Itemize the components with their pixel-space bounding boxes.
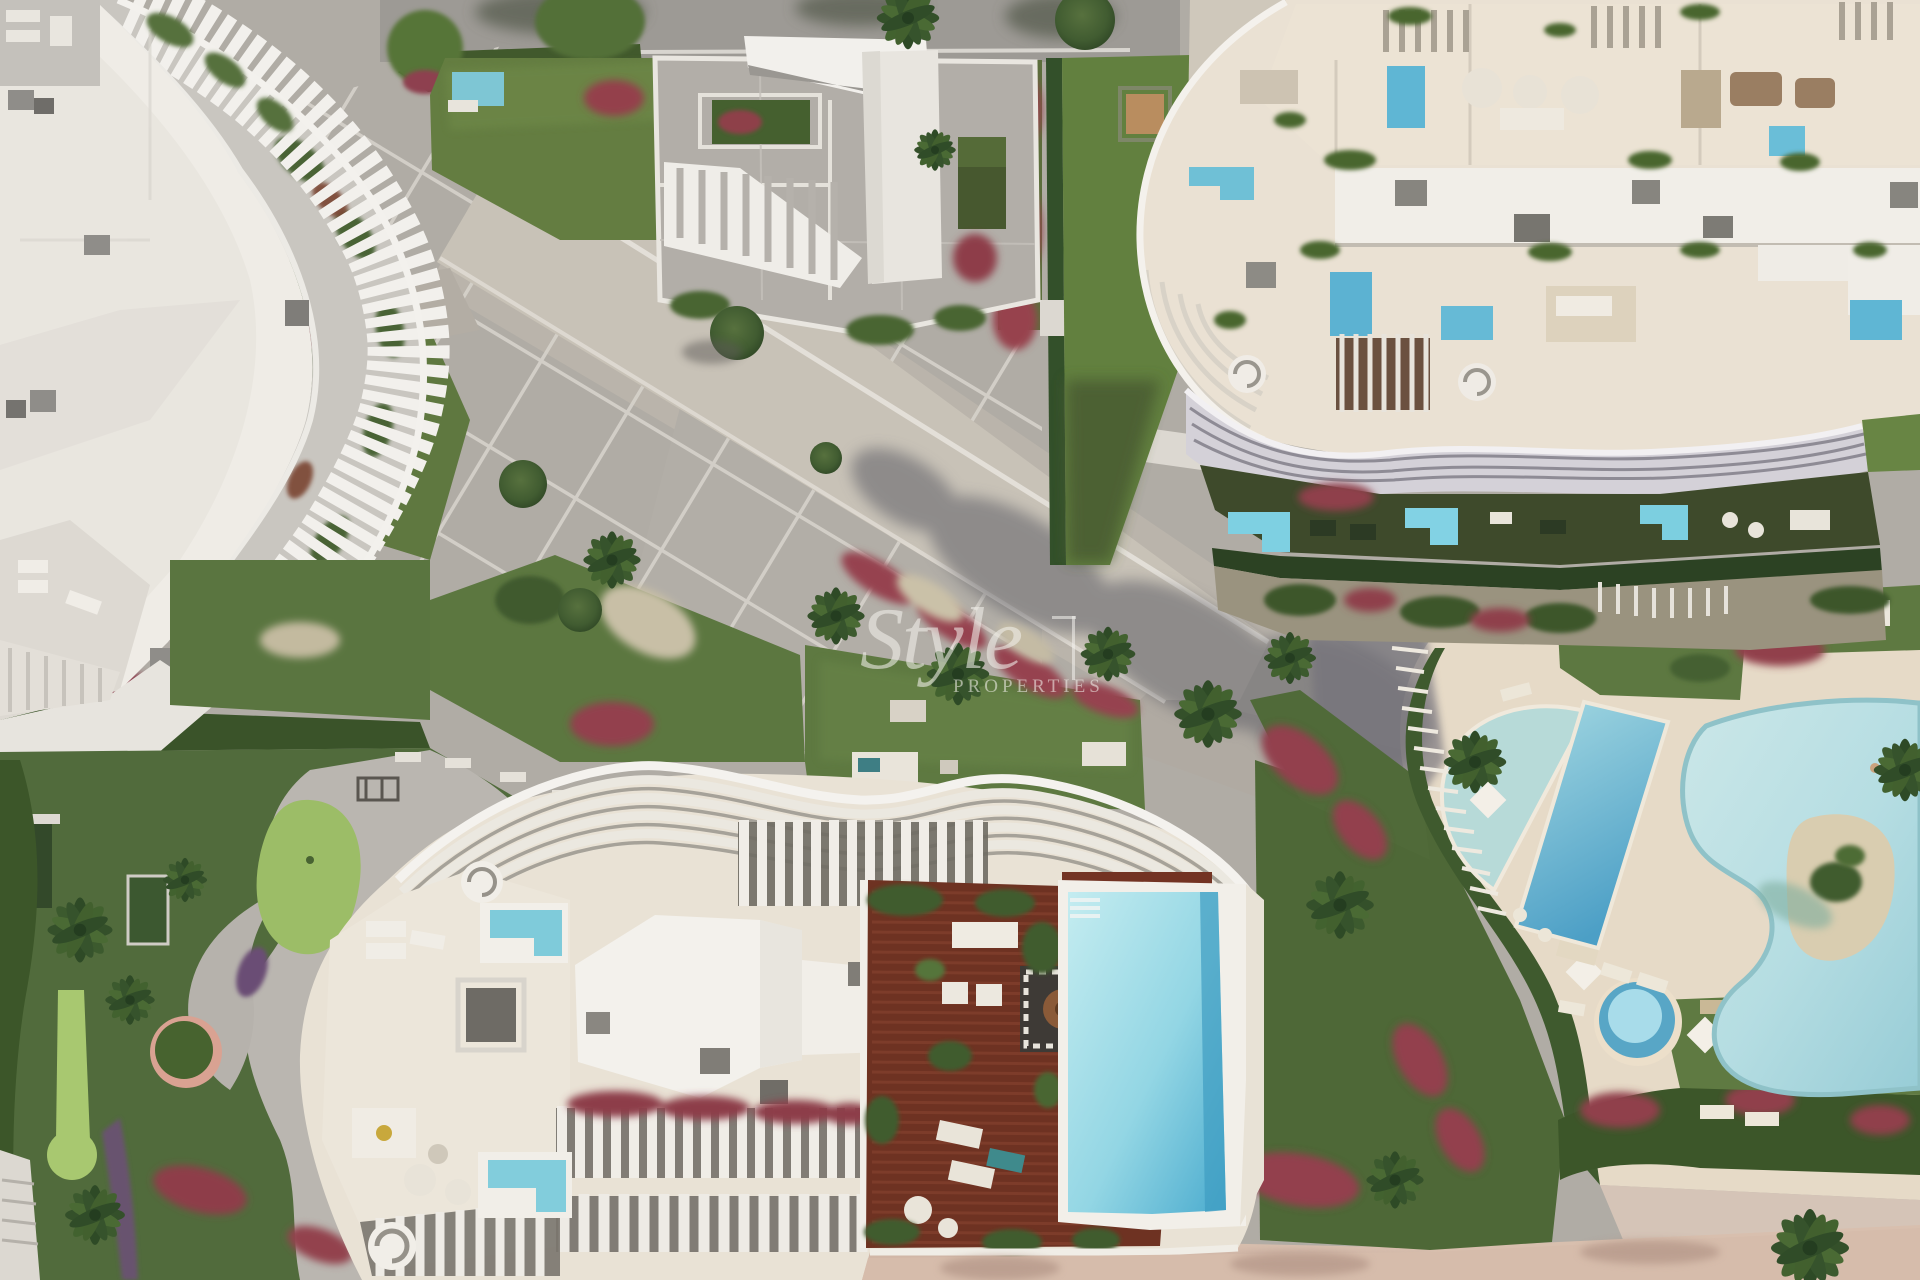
svg-text:PROPERTIES: PROPERTIES	[953, 676, 1104, 697]
svg-text:Style: Style	[860, 591, 1022, 688]
